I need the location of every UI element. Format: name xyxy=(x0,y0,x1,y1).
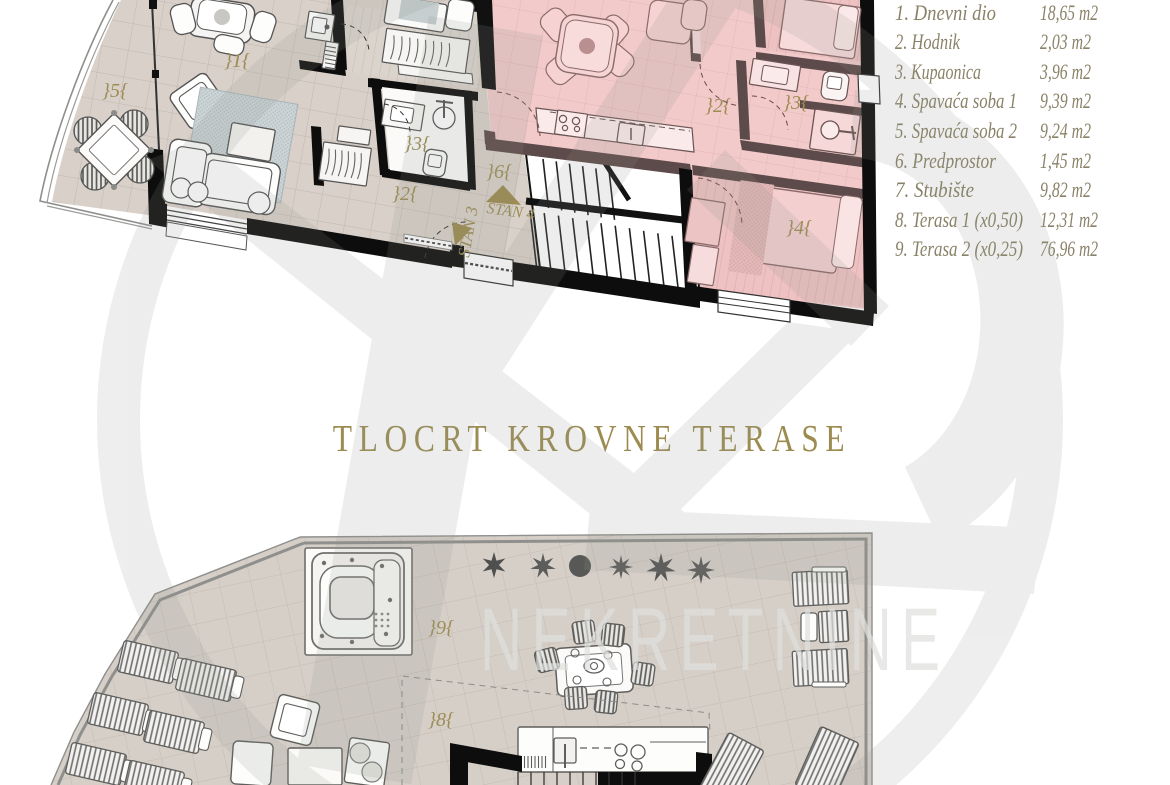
svg-text:9,82 m2: 9,82 m2 xyxy=(1040,177,1091,202)
svg-text:}2{: }2{ xyxy=(705,95,731,117)
svg-text:18,65 m2: 18,65 m2 xyxy=(1040,0,1098,25)
svg-text:2,03 m2: 2,03 m2 xyxy=(1040,29,1091,54)
svg-text:1,45 m2: 1,45 m2 xyxy=(1040,148,1091,173)
svg-text:9,24 m2: 9,24 m2 xyxy=(1040,118,1091,143)
svg-text:3,96 m2: 3,96 m2 xyxy=(1039,59,1091,84)
svg-text:NEKRETNINE: NEKRETNINE xyxy=(480,590,949,689)
svg-text:}8{: }8{ xyxy=(428,709,454,731)
svg-text:}5{: }5{ xyxy=(102,80,128,102)
svg-text:12,31 m2: 12,31 m2 xyxy=(1040,207,1098,232)
svg-text:1. Dnevni dio: 1. Dnevni dio xyxy=(895,0,996,25)
svg-text:}1{: }1{ xyxy=(224,50,250,72)
svg-text:}3{: }3{ xyxy=(783,92,809,114)
svg-text:2. Hodnik: 2. Hodnik xyxy=(895,29,961,54)
svg-text:9,39 m2: 9,39 m2 xyxy=(1040,88,1091,113)
